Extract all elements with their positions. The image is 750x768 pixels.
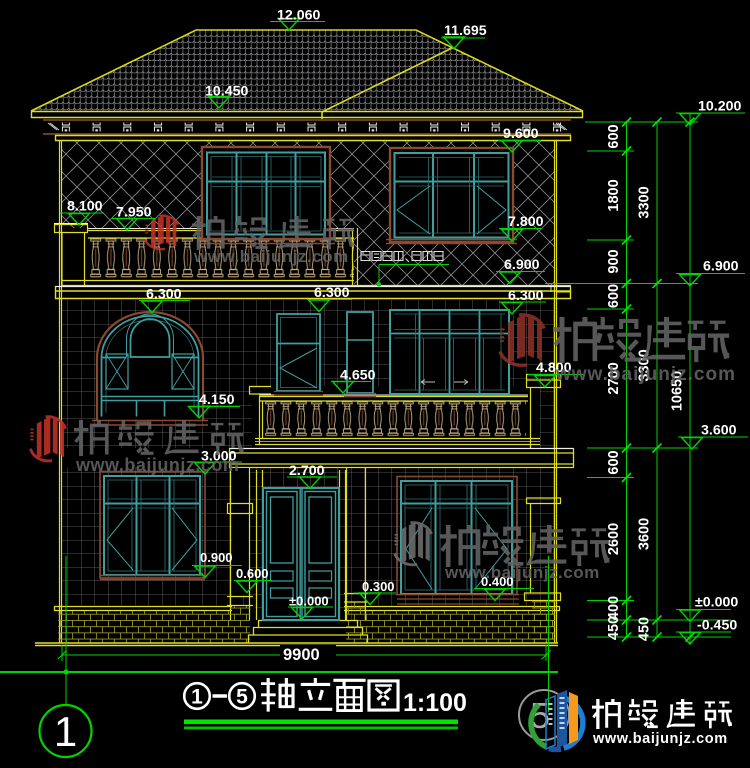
- svg-text:600: 600: [606, 450, 622, 474]
- svg-text:6.300: 6.300: [508, 288, 544, 304]
- svg-text:7.950: 7.950: [116, 205, 152, 221]
- svg-text:3.600: 3.600: [701, 423, 737, 439]
- svg-text:3300: 3300: [637, 186, 653, 218]
- svg-text:www.baijunjz.com: www.baijunjz.com: [592, 731, 728, 747]
- svg-text:1800: 1800: [606, 179, 622, 211]
- svg-text:0.600: 0.600: [236, 566, 269, 581]
- svg-text:www.baijunjz.com: www.baijunjz.com: [193, 247, 349, 266]
- svg-text:0.300: 0.300: [362, 579, 395, 594]
- svg-text:6.300: 6.300: [314, 285, 350, 301]
- svg-text:8.100: 8.100: [67, 199, 103, 215]
- svg-text:±0.000: ±0.000: [289, 594, 329, 609]
- svg-text:-0.450: -0.450: [697, 618, 737, 634]
- svg-text:11.695: 11.695: [444, 23, 487, 39]
- svg-text:9.600: 9.600: [503, 126, 539, 142]
- svg-text:4.150: 4.150: [199, 392, 235, 408]
- svg-text:900: 900: [606, 249, 622, 273]
- svg-text:9900: 9900: [283, 646, 320, 664]
- svg-text:0.900: 0.900: [200, 550, 233, 565]
- svg-text:7.800: 7.800: [508, 214, 544, 230]
- svg-text:2.700: 2.700: [289, 463, 325, 479]
- svg-text:12.060: 12.060: [277, 8, 321, 24]
- svg-text:4.650: 4.650: [340, 368, 376, 384]
- svg-text:www.baijunjz.com: www.baijunjz.com: [555, 364, 736, 385]
- svg-text:±0.000: ±0.000: [695, 595, 738, 611]
- svg-text:2600: 2600: [606, 523, 622, 555]
- svg-text:600: 600: [606, 284, 622, 308]
- svg-text:www.baijunjz.com: www.baijunjz.com: [444, 563, 600, 582]
- svg-text:6.300: 6.300: [146, 287, 182, 303]
- svg-text:600: 600: [606, 124, 622, 148]
- svg-text:6.900: 6.900: [504, 257, 540, 273]
- svg-text:5: 5: [236, 686, 248, 709]
- svg-text:1: 1: [191, 686, 203, 709]
- svg-text:1:100: 1:100: [403, 689, 467, 717]
- svg-text:3600: 3600: [637, 518, 653, 550]
- svg-text:1: 1: [54, 708, 77, 755]
- svg-text:www.baijunjz.com: www.baijunjz.com: [75, 455, 239, 475]
- svg-text:450: 450: [606, 616, 622, 640]
- svg-text:450: 450: [637, 617, 653, 641]
- svg-text:10.450: 10.450: [205, 84, 249, 100]
- svg-text:10.200: 10.200: [698, 99, 742, 115]
- svg-text:6.900: 6.900: [703, 259, 739, 275]
